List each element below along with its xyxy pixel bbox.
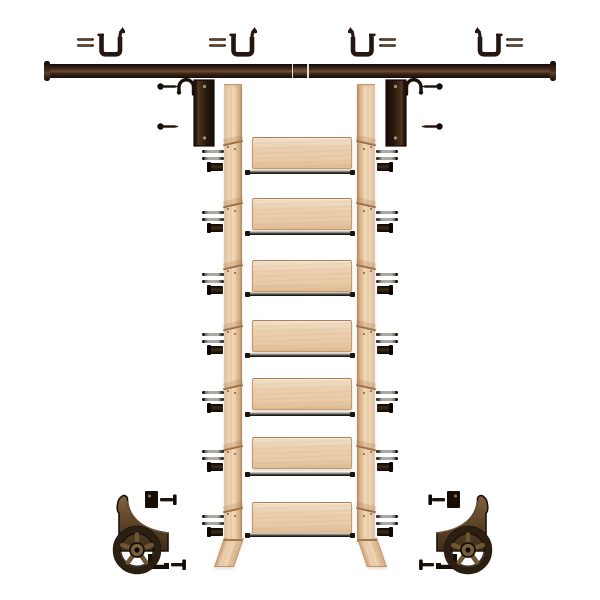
ladder-hook-bracket-icon <box>382 78 444 150</box>
joint-screw-hole <box>370 331 372 333</box>
rail-mounting-bracket <box>76 26 125 58</box>
tread-rod <box>246 292 354 296</box>
screw-icon <box>202 391 224 394</box>
tread-rod <box>246 412 354 416</box>
rail-section-joint <box>356 197 376 213</box>
screw-icon <box>202 333 224 336</box>
roller-assembly-icon <box>418 487 510 579</box>
joint-screw-hole <box>363 453 365 455</box>
screw-icon <box>202 211 224 214</box>
tread-hardware-set <box>202 273 224 295</box>
tread-hardware-set <box>376 515 398 537</box>
screw-icon <box>376 273 398 276</box>
rail-section-joint <box>356 440 376 456</box>
tread-rod <box>246 170 354 174</box>
joint-screw-hole <box>227 451 229 453</box>
lag-bolt-icon <box>157 83 178 89</box>
joint-screw-hole <box>234 515 236 517</box>
screw-icon <box>376 391 398 394</box>
screw-icon <box>376 457 398 460</box>
ladder-hook-bracket <box>382 78 444 150</box>
bracket-channel <box>353 35 372 54</box>
mounting-screw-icon <box>77 44 94 46</box>
wall-rail <box>48 64 552 78</box>
tread-rod <box>246 533 354 537</box>
mounting-screw-icon <box>379 38 396 40</box>
rail-section-joint <box>356 320 376 336</box>
barrel-nut-icon <box>377 286 391 294</box>
rail-section-joint <box>223 379 243 395</box>
tread-hardware-set <box>376 273 398 295</box>
bracket-hook <box>349 31 353 37</box>
joint-screw-hole <box>227 208 229 210</box>
lag-bolt-icon <box>157 123 178 129</box>
lag-bolt-icon <box>422 83 443 89</box>
joint-screw-hole <box>363 333 365 335</box>
rail-mounting-bracket <box>208 26 257 58</box>
tread-hardware-set <box>376 450 398 472</box>
tread-hardware-set <box>376 391 398 413</box>
barrel-nut-icon <box>377 224 391 232</box>
tread-rod <box>246 231 354 235</box>
joint-screw-hole <box>370 208 372 210</box>
joint-screw-hole <box>234 333 236 335</box>
joint-screw-hole <box>234 453 236 455</box>
joint-screw-hole <box>227 270 229 272</box>
barrel-nut-icon <box>209 346 223 354</box>
screw-icon <box>202 150 224 153</box>
rail-mounting-bracket <box>348 26 397 58</box>
top-bracket-and-screw <box>428 491 460 508</box>
joint-screw-hole <box>363 210 365 212</box>
joint-screw-hole <box>363 148 365 150</box>
screw-icon <box>376 398 398 401</box>
screw-icon <box>202 515 224 518</box>
roller-assembly-icon <box>95 487 187 579</box>
rail-splice-connector <box>293 66 307 76</box>
spoked-wheel <box>114 527 161 574</box>
screw-icon <box>376 157 398 160</box>
plate-seam <box>401 81 403 145</box>
bracket-channel <box>234 35 253 54</box>
bracket-hook <box>476 31 480 37</box>
ladder-tread <box>252 137 352 169</box>
ladder-tread <box>252 378 352 410</box>
joint-screw-hole <box>363 515 365 517</box>
joint-screw-hole <box>234 392 236 394</box>
tread-hardware-set <box>202 450 224 472</box>
tread-rod <box>246 353 354 357</box>
bracket-plate <box>386 80 406 146</box>
hook-tip <box>177 90 181 94</box>
bracket-hook <box>120 31 124 37</box>
tread-hardware-set <box>202 150 224 172</box>
joint-screw-hole <box>363 272 365 274</box>
hanger-hook <box>179 80 194 94</box>
screw-icon <box>202 218 224 221</box>
mounting-screw-icon <box>506 38 523 40</box>
ladder-hook-bracket-icon <box>156 78 218 150</box>
rail-splice-gap <box>307 64 309 78</box>
rail-section-joint <box>223 135 243 151</box>
rail-section-joint <box>356 379 376 395</box>
ladder-tread <box>252 198 352 230</box>
rail-section-joint <box>223 320 243 336</box>
rail-end-cap <box>44 61 50 81</box>
tread-hardware-set <box>376 150 398 172</box>
mounting-screw-icon <box>209 44 226 46</box>
rail-mounting-bracket-icon <box>348 26 397 58</box>
tread-rod <box>246 472 354 476</box>
ladder-tread <box>252 502 352 534</box>
ladder-tread <box>252 320 352 352</box>
joint-screw-hole <box>227 390 229 392</box>
screw-icon <box>202 280 224 283</box>
screw-icon <box>376 515 398 518</box>
mounting-screw-icon <box>209 38 226 40</box>
tread-hardware-set <box>202 211 224 233</box>
joint-screw-hole <box>234 210 236 212</box>
barrel-nut-icon <box>377 463 391 471</box>
tread-hardware-set <box>376 333 398 355</box>
screw-icon <box>376 280 398 283</box>
barrel-nut-icon <box>209 463 223 471</box>
screw-icon <box>376 218 398 221</box>
ladder-rail-foot <box>214 538 244 567</box>
hanger-hook <box>407 80 422 94</box>
joint-screw-hole <box>370 270 372 272</box>
barrel-nut-icon <box>377 163 391 171</box>
screw-hole <box>394 136 397 139</box>
bracket-channel <box>480 35 499 54</box>
ladder-side-rail <box>357 84 375 542</box>
ladder-rail-foot <box>357 538 387 567</box>
bracket-channel <box>102 35 121 54</box>
rail-section-joint <box>223 440 243 456</box>
foot-cut-line <box>223 539 243 541</box>
screw-icon <box>376 340 398 343</box>
screw-icon <box>202 457 224 460</box>
screw-icon <box>202 157 224 160</box>
lag-bolt-icon <box>422 123 443 129</box>
rail-section-joint <box>223 259 243 275</box>
rail-section-joint <box>356 259 376 275</box>
screw-hole <box>394 85 397 88</box>
rail-mounting-bracket-icon <box>475 26 524 58</box>
spoked-wheel <box>445 527 492 574</box>
rail-section-joint <box>356 502 376 518</box>
screw-icon <box>202 398 224 401</box>
rail-section-joint <box>223 197 243 213</box>
ladder-tread <box>252 260 352 292</box>
barrel-nut-icon <box>209 163 223 171</box>
barrel-nut-icon <box>209 286 223 294</box>
screw-icon <box>202 340 224 343</box>
barrel-nut-icon <box>377 346 391 354</box>
screw-icon <box>376 211 398 214</box>
mounting-screw-icon <box>379 44 396 46</box>
axle-bolt <box>465 547 470 552</box>
ladder-hook-bracket <box>156 78 218 150</box>
joint-screw-hole <box>234 272 236 274</box>
joint-screw-hole <box>370 513 372 515</box>
mounting-screw-icon <box>77 38 94 40</box>
product-image-stage <box>0 0 600 600</box>
rail-mounting-bracket-icon <box>208 26 257 58</box>
top-bracket-and-screw <box>145 491 177 508</box>
roller-carriage <box>117 496 168 551</box>
ladder-tread <box>252 437 352 469</box>
joint-screw-hole <box>227 331 229 333</box>
rail-section-joint <box>223 502 243 518</box>
screw-icon <box>376 150 398 153</box>
barrel-nut-icon <box>377 528 391 536</box>
screw-icon <box>376 522 398 525</box>
bracket-hook <box>252 31 256 37</box>
screw-icon <box>376 333 398 336</box>
screw-icon <box>202 522 224 525</box>
plate-seam <box>198 81 200 145</box>
barrel-nut-icon <box>377 404 391 412</box>
screw-hole <box>203 136 206 139</box>
bracket-plate <box>194 80 214 146</box>
screw-hole <box>203 85 206 88</box>
hook-tip <box>419 90 423 94</box>
joint-screw-hole <box>234 148 236 150</box>
barrel-nut-icon <box>209 224 223 232</box>
foot-cut-line <box>357 539 377 541</box>
joint-screw-hole <box>363 392 365 394</box>
barrel-nut-icon <box>209 528 223 536</box>
roller-assembly <box>95 487 187 579</box>
joint-screw-hole <box>370 146 372 148</box>
ladder-side-rail <box>224 84 242 542</box>
rail-mounting-bracket-icon <box>76 26 125 58</box>
screw-icon <box>202 450 224 453</box>
joint-screw-hole <box>227 513 229 515</box>
barrel-nut-icon <box>209 404 223 412</box>
tread-hardware-set <box>202 515 224 537</box>
joint-screw-hole <box>370 390 372 392</box>
rail-mounting-bracket <box>475 26 524 58</box>
joint-screw-hole <box>370 451 372 453</box>
tread-hardware-set <box>202 391 224 413</box>
rail-end-cap <box>550 61 556 81</box>
screw-icon <box>202 273 224 276</box>
mounting-screw-icon <box>506 44 523 46</box>
tread-hardware-set <box>202 333 224 355</box>
tread-hardware-set <box>376 211 398 233</box>
roller-assembly <box>418 487 510 579</box>
rail-section-joint <box>356 135 376 151</box>
axle-bolt <box>134 547 139 552</box>
joint-screw-hole <box>227 146 229 148</box>
screw-icon <box>376 450 398 453</box>
roller-carriage <box>437 496 488 551</box>
